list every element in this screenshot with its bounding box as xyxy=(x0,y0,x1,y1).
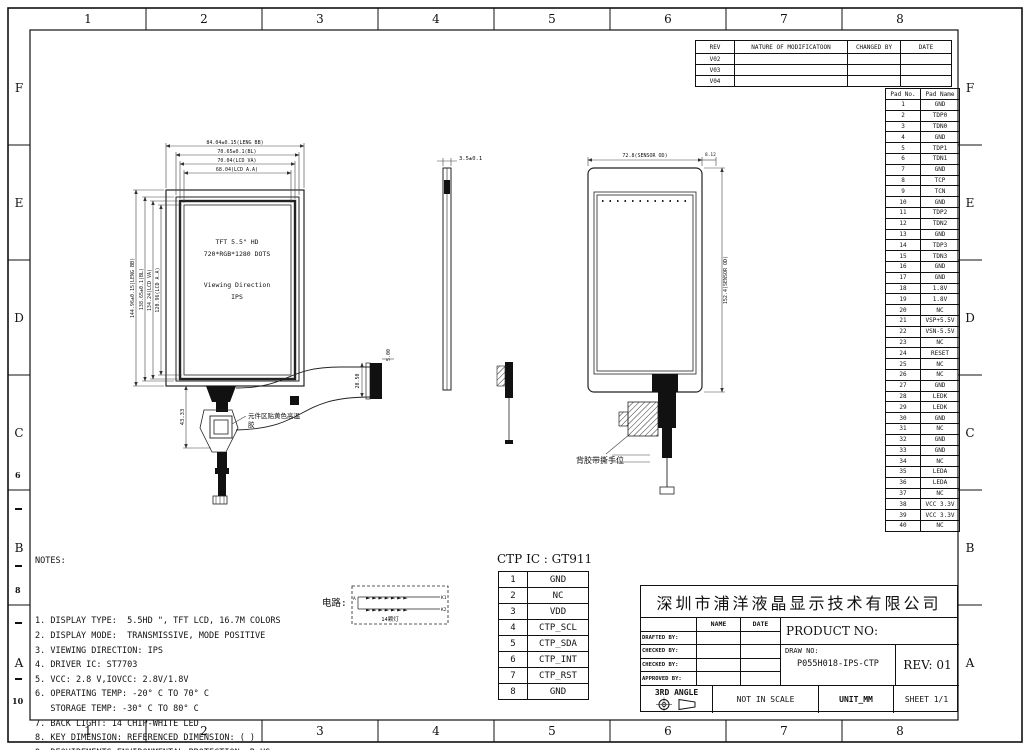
sheet-cell: SHEET 1/1 xyxy=(894,686,959,713)
pad-row: 37 NC xyxy=(886,488,960,499)
ctp-pin-row: 8 GND xyxy=(499,684,589,700)
nature-header: NATURE OF MODIFICATOON xyxy=(735,41,848,54)
svg-text:84.04±0.15(LENG BB): 84.04±0.15(LENG BB) xyxy=(206,140,263,146)
pad-name-cell: NC xyxy=(921,521,960,532)
pad-row: 40 NC xyxy=(886,521,960,532)
product-no: PRODUCT NO: xyxy=(781,618,959,645)
pad-no-cell: 31 xyxy=(886,423,921,434)
note-line: 3. VIEWING DIRECTION: IPS xyxy=(35,644,345,659)
pad-name-cell: TDN3 xyxy=(921,251,960,262)
ctp-pin-no-cell: 7 xyxy=(499,668,528,684)
pad-no-cell: 2 xyxy=(886,110,921,121)
pad-name-cell: GND xyxy=(921,197,960,208)
border-columns-top: 12345678 xyxy=(30,8,958,30)
sig-name-cell xyxy=(697,645,741,659)
lcd-side-view: 3.5±0.1 xyxy=(437,156,513,444)
title-block: 深圳市浦洋液晶显示技术有限公司 NAME DATE DRAFTED BY: CH… xyxy=(640,585,958,712)
ctp-pin-row: 1 GND xyxy=(499,572,589,588)
pad-row: 3 TDN0 xyxy=(886,121,960,132)
note-line: 5. VCC: 2.8 V,IOVCC: 2.8V/1.8V xyxy=(35,673,345,688)
pad-no-cell: 22 xyxy=(886,326,921,337)
svg-text:720*RGB*1280 DOTS: 720*RGB*1280 DOTS xyxy=(204,250,271,258)
pad-row: 10 GND xyxy=(886,197,960,208)
pad-name-cell: TDP0 xyxy=(921,110,960,121)
rev-header: REV xyxy=(696,41,735,54)
sig-date-cell xyxy=(741,645,781,659)
pad-name-cell: LEDK xyxy=(921,402,960,413)
pad-name-cell: GND xyxy=(921,272,960,283)
pad-row: 29 LEDK xyxy=(886,402,960,413)
pad-name-cell: LEDK xyxy=(921,391,960,402)
rev-id-cell: V03 xyxy=(696,65,735,76)
led-symbols-icon: ►►►►►►► xyxy=(366,606,410,614)
pad-no-cell: 8 xyxy=(886,175,921,186)
svg-text:背胶带撕手位: 背胶带撕手位 xyxy=(576,455,624,465)
ctp-pin-name-cell: CTP_INT xyxy=(528,652,589,668)
svg-text:K1: K1 xyxy=(441,595,447,601)
pad-row: 7 GND xyxy=(886,164,960,175)
zone-column-label: 7 xyxy=(726,720,842,742)
border-dash xyxy=(15,678,22,680)
date-header: DATE xyxy=(901,41,952,54)
notes-block: NOTES: 1. DISPLAY TYPE: 5.5HD ", TFT LCD… xyxy=(35,554,345,750)
pad-row: 18 1.8V xyxy=(886,283,960,294)
pad-no-cell: 36 xyxy=(886,477,921,488)
pad-row: 2 TDP0 xyxy=(886,110,960,121)
pad-name-cell: TDN0 xyxy=(921,121,960,132)
svg-text:3.5±0.1: 3.5±0.1 xyxy=(459,156,482,162)
svg-text:14颗灯: 14颗灯 xyxy=(381,615,399,623)
fpc-note: 元件区贴黄色高温 胶 xyxy=(232,411,301,429)
sig-date-cell xyxy=(741,632,781,646)
zone-row-label: A xyxy=(958,605,982,720)
ctp-top-dimension: 72.8(SENSOR OD) 8.12 xyxy=(588,152,716,166)
zone-column-label: 2 xyxy=(146,8,262,30)
led-symbols-icon: ►►►►►►► xyxy=(366,594,410,602)
pad-no-cell: 25 xyxy=(886,359,921,370)
pad-row: 28 LEDK xyxy=(886,391,960,402)
zone-row-label: C xyxy=(958,375,982,490)
pad-row: 26 NC xyxy=(886,369,960,380)
svg-text:胶: 胶 xyxy=(248,420,255,429)
nature-cell xyxy=(735,65,848,76)
sig-label: APPROVED BY: xyxy=(641,672,697,686)
pad-row: 33 GND xyxy=(886,445,960,456)
zone-row-label: E xyxy=(8,145,30,260)
pad-row: 39 VCC 3.3V xyxy=(886,510,960,521)
pad-row: 25 NC xyxy=(886,359,960,370)
pad-no-cell: 1 xyxy=(886,100,921,111)
ctp-pin-no-cell: 3 xyxy=(499,604,528,620)
pad-name-cell: TDP3 xyxy=(921,240,960,251)
svg-text:20.50: 20.50 xyxy=(355,373,361,388)
note-line: 2. DISPLAY MODE: TRANSMISSIVE, MODE POSI… xyxy=(35,629,345,644)
pad-no-cell: 9 xyxy=(886,186,921,197)
border-subtick: 6 xyxy=(15,470,21,480)
pad-no-cell: 33 xyxy=(886,445,921,456)
pad-row: 6 TDN1 xyxy=(886,153,960,164)
pad-row: 14 TDP3 xyxy=(886,240,960,251)
pad-row: 9 TCN xyxy=(886,186,960,197)
changed-cell xyxy=(848,76,901,87)
pad-no-cell: 14 xyxy=(886,240,921,251)
pad-no-cell: 18 xyxy=(886,283,921,294)
sig-date-cell xyxy=(741,672,781,686)
rev-id-cell: V02 xyxy=(696,54,735,65)
zone-row-label: E xyxy=(958,145,982,260)
pad-row: 23 NC xyxy=(886,337,960,348)
zone-row-label: D xyxy=(958,260,982,375)
pad-no-cell: 21 xyxy=(886,315,921,326)
pad-name-cell: GND xyxy=(921,229,960,240)
pad-no-cell: 7 xyxy=(886,164,921,175)
zone-row-label: F xyxy=(958,30,982,145)
zone-column-label: 6 xyxy=(610,720,726,742)
svg-text:138.65±0.1(BL): 138.65±0.1(BL) xyxy=(139,268,145,310)
pad-name-cell: NC xyxy=(921,488,960,499)
pad-no-cell: 11 xyxy=(886,207,921,218)
drawing-sheet: TFT 5.5" HD 720*RGB*1280 DOTS Viewing Di… xyxy=(0,0,1030,750)
title-block-bottom: 3RD ANGLE NOT IN SCALE UNIT_MM SHEET 1/1 xyxy=(641,686,959,713)
svg-text:Viewing Direction: Viewing Direction xyxy=(204,281,271,289)
ctp-pin-name-cell: CTP_SDA xyxy=(528,636,589,652)
pad-no-cell: 27 xyxy=(886,380,921,391)
nature-cell xyxy=(735,54,848,65)
svg-text:K2: K2 xyxy=(441,607,447,613)
changed-cell xyxy=(848,54,901,65)
zone-column-label: 4 xyxy=(378,720,494,742)
pad-no-cell: 38 xyxy=(886,499,921,510)
date-header: DATE xyxy=(741,618,781,632)
pad-no-cell: 4 xyxy=(886,132,921,143)
svg-text:70.65±0.1(BL): 70.65±0.1(BL) xyxy=(217,149,256,155)
pad-no-cell: 29 xyxy=(886,402,921,413)
changed-header: CHANGED BY xyxy=(848,41,901,54)
pad-row: 30 GND xyxy=(886,413,960,424)
pad-row: 13 GND xyxy=(886,229,960,240)
zone-column-label: 8 xyxy=(842,720,958,742)
pad-row: 24 RESET xyxy=(886,348,960,359)
note-line: 1. DISPLAY TYPE: 5.5HD ", TFT LCD, 16.7M… xyxy=(35,614,345,629)
pad-name-cell: NC xyxy=(921,423,960,434)
svg-text:68.04(LCD A.A): 68.04(LCD A.A) xyxy=(216,167,258,173)
border-dash xyxy=(15,565,22,567)
zone-column-label: 1 xyxy=(30,8,146,30)
sig-name-cell xyxy=(697,632,741,646)
svg-text:8.12: 8.12 xyxy=(705,152,716,158)
ctp-pin-name-cell: GND xyxy=(528,684,589,700)
adhesive-pull-tab: 背胶带撕手位 xyxy=(576,402,658,465)
fpc-tail xyxy=(200,386,299,504)
ctp-pin-row: 3 VDD xyxy=(499,604,589,620)
svg-text:72.8(SENSOR OD): 72.8(SENSOR OD) xyxy=(622,153,667,159)
pad-table: Pad No. Pad Name 1 GND 2 TDP0 3 TDN0 xyxy=(885,88,960,532)
pad-row: 20 NC xyxy=(886,305,960,316)
lcd-front-view: TFT 5.5" HD 720*RGB*1280 DOTS Viewing Di… xyxy=(130,140,394,504)
pad-name-cell: TDN2 xyxy=(921,218,960,229)
ctp-pin-row: 2 NC xyxy=(499,588,589,604)
date-cell xyxy=(901,54,952,65)
pad-no-cell: 26 xyxy=(886,369,921,380)
pad-no-cell: 13 xyxy=(886,229,921,240)
pad-no-cell: 20 xyxy=(886,305,921,316)
pad-no-cell: 32 xyxy=(886,434,921,445)
pad-row: 21 VSP+5.5V xyxy=(886,315,960,326)
pad-row: 5 TDP1 xyxy=(886,143,960,154)
pad-no-cell: 28 xyxy=(886,391,921,402)
pad-no-cell: 5 xyxy=(886,143,921,154)
pad-row: 11 TDP2 xyxy=(886,207,960,218)
pad-no-cell: 37 xyxy=(886,488,921,499)
rev-id-cell: V04 xyxy=(696,76,735,87)
pad-no-cell: 19 xyxy=(886,294,921,305)
date-cell xyxy=(901,76,952,87)
ctp-pin-row: 4 CTP_SCL xyxy=(499,620,589,636)
ctp-pin-no-cell: 8 xyxy=(499,684,528,700)
pad-no-cell: 34 xyxy=(886,456,921,467)
zone-column-label: 8 xyxy=(842,8,958,30)
pad-name-cell: GND xyxy=(921,434,960,445)
pad-name-cell: VCC 3.3V xyxy=(921,499,960,510)
pad-row: 31 NC xyxy=(886,423,960,434)
pad-name-cell: TDP1 xyxy=(921,143,960,154)
pad-name-cell: 1.8V xyxy=(921,294,960,305)
ctp-pin-no-cell: 1 xyxy=(499,572,528,588)
notes-title: NOTES: xyxy=(35,554,345,569)
ctp-pin-no-cell: 5 xyxy=(499,636,528,652)
sig-name-cell xyxy=(697,672,741,686)
pad-name-cell: LEDA xyxy=(921,477,960,488)
pad-no-cell: 35 xyxy=(886,467,921,478)
svg-text:120.96(LCD A.A): 120.96(LCD A.A) xyxy=(155,267,161,312)
svg-text:144.96±0.15(LENG BB): 144.96±0.15(LENG BB) xyxy=(130,258,136,318)
pad-row: 32 GND xyxy=(886,434,960,445)
rev-number: REV: 01 xyxy=(896,645,959,686)
pad-row: 16 GND xyxy=(886,261,960,272)
svg-text:5.00: 5.00 xyxy=(386,349,392,361)
thickness-dimension: 3.5±0.1 xyxy=(437,156,482,166)
pad-name-cell: NC xyxy=(921,456,960,467)
sig-label: CHECKED BY: xyxy=(641,645,697,659)
pad-no-cell: 12 xyxy=(886,218,921,229)
pad-name-cell: TCP xyxy=(921,175,960,186)
zone-column-label: 5 xyxy=(494,8,610,30)
svg-text:152.4(SENSOR OD): 152.4(SENSOR OD) xyxy=(723,256,729,304)
ctp-pin-no-cell: 6 xyxy=(499,652,528,668)
signature-grid: NAME DATE DRAFTED BY: CHECKED BY: CHECKE… xyxy=(641,618,781,686)
svg-text:TFT 5.5" HD: TFT 5.5" HD xyxy=(215,238,258,246)
ctp-pin-no-cell: 4 xyxy=(499,620,528,636)
note-line: STORAGE TEMP: -30° C TO 80° C xyxy=(35,702,345,717)
nature-cell xyxy=(735,76,848,87)
pad-name-cell: GND xyxy=(921,100,960,111)
pad-row: 36 LEDA xyxy=(886,477,960,488)
note-line: 4. DRIVER IC: ST7703 xyxy=(35,658,345,673)
pad-no-cell: 16 xyxy=(886,261,921,272)
pad-no-cell: 40 xyxy=(886,521,921,532)
pad-name-cell: GND xyxy=(921,380,960,391)
date-cell xyxy=(901,65,952,76)
svg-text:134.24(LCD VA): 134.24(LCD VA) xyxy=(147,269,153,311)
company-name: 深圳市浦洋液晶显示技术有限公司 xyxy=(641,586,957,618)
pad-no-cell: 30 xyxy=(886,413,921,424)
pad-no-cell: 23 xyxy=(886,337,921,348)
name-header: NAME xyxy=(697,618,741,632)
pad-row: 12 TDN2 xyxy=(886,218,960,229)
border-dash xyxy=(15,508,22,510)
projection-angle-label: 3RD ANGLE xyxy=(655,688,698,697)
pad-row: 34 NC xyxy=(886,456,960,467)
pad-name-cell: GND xyxy=(921,132,960,143)
draw-no-value: P055H018-IPS-CTP xyxy=(781,659,895,669)
sig-date-cell xyxy=(741,659,781,673)
revision-row: V03 xyxy=(696,65,952,76)
border-dash xyxy=(15,622,22,624)
ctp-ic-title: CTP IC : GT911 xyxy=(497,552,592,566)
pad-row: 19 1.8V xyxy=(886,294,960,305)
draw-no-label: DRAW NO: xyxy=(781,645,895,655)
svg-text:43.33: 43.33 xyxy=(180,409,186,426)
pad-row: 22 VSN-5.5V xyxy=(886,326,960,337)
pad-row: 38 VCC 3.3V xyxy=(886,499,960,510)
pad-row: 8 TCP xyxy=(886,175,960,186)
sig-corner-cell xyxy=(641,618,697,632)
lcd-center-text: TFT 5.5" HD 720*RGB*1280 DOTS Viewing Di… xyxy=(204,238,271,301)
ctp-pin-row: 5 CTP_SDA xyxy=(499,636,589,652)
pad-row: 35 LEDA xyxy=(886,467,960,478)
pad-no-cell: 17 xyxy=(886,272,921,283)
changed-cell xyxy=(848,65,901,76)
pad-name-cell: NC xyxy=(921,305,960,316)
svg-text:元件区贴黄色高温: 元件区贴黄色高温 xyxy=(248,411,301,420)
zone-column-label: 7 xyxy=(726,8,842,30)
revision-table: REV NATURE OF MODIFICATOON CHANGED BY DA… xyxy=(695,40,952,87)
ctp-pin-name-cell: CTP_SCL xyxy=(528,620,589,636)
sig-name-cell xyxy=(697,659,741,673)
pad-row: 17 GND xyxy=(886,272,960,283)
ctp-front-view: 72.8(SENSOR OD) 8.12 152.4(SENSOR OD) xyxy=(576,152,729,494)
pad-name-cell: RESET xyxy=(921,348,960,359)
pad-name-cell: GND xyxy=(921,413,960,424)
pad-name-cell: LEDA xyxy=(921,467,960,478)
pad-name-header: Pad Name xyxy=(921,89,960,100)
draw-no-cell: DRAW NO: P055H018-IPS-CTP xyxy=(781,645,896,686)
pad-name-cell: 1.8V xyxy=(921,283,960,294)
fpc-length-dimension: 43.33 xyxy=(180,386,211,448)
pad-no-header: Pad No. xyxy=(886,89,921,100)
pad-no-cell: 15 xyxy=(886,251,921,262)
pad-no-cell: 10 xyxy=(886,197,921,208)
pad-name-cell: VCC 3.3V xyxy=(921,510,960,521)
revision-row: V02 xyxy=(696,54,952,65)
pad-name-cell: NC xyxy=(921,369,960,380)
zone-row-label: F xyxy=(8,30,30,145)
pad-row: 1 GND xyxy=(886,100,960,111)
pad-name-cell: TDN1 xyxy=(921,153,960,164)
pad-no-cell: 39 xyxy=(886,510,921,521)
pad-name-cell: TDP2 xyxy=(921,207,960,218)
svg-text:A: A xyxy=(353,596,356,602)
zone-column-label: 5 xyxy=(494,720,610,742)
border-subtick: 10 xyxy=(12,696,23,706)
note-line: 7. BACK LIGHT: 14 CHIP-WHITE LED xyxy=(35,717,345,732)
projection-angle-cell: 3RD ANGLE xyxy=(641,686,713,713)
pad-name-cell: GND xyxy=(921,164,960,175)
zone-column-label: 4 xyxy=(378,8,494,30)
ctp-pin-table: 1 GND 2 NC 3 VDD 4 CTP_SCL xyxy=(498,571,589,700)
pad-no-cell: 6 xyxy=(886,153,921,164)
pad-name-cell: VSP+5.5V xyxy=(921,315,960,326)
ctp-pin-no-cell: 2 xyxy=(499,588,528,604)
zone-column-label: 3 xyxy=(262,8,378,30)
ctp-pin-row: 7 CTP_RST xyxy=(499,668,589,684)
ctp-pin-name-cell: CTP_RST xyxy=(528,668,589,684)
border-rows-right: FEDCBA xyxy=(958,30,982,720)
note-line: 6. OPERATING TEMP: -20° C TO 70° C xyxy=(35,687,345,702)
pad-no-cell: 24 xyxy=(886,348,921,359)
third-angle-symbol-icon xyxy=(655,697,699,712)
pad-name-cell: GND xyxy=(921,445,960,456)
revision-row: V04 xyxy=(696,76,952,87)
scale-cell: NOT IN SCALE xyxy=(713,686,819,713)
note-line: 8. KEY DIMENSION: REFERENCED DIMENSION: … xyxy=(35,731,345,746)
pad-name-cell: GND xyxy=(921,261,960,272)
zone-row-label: D xyxy=(8,260,30,375)
border-subtick: 8 xyxy=(15,585,21,595)
sig-label: CHECKED BY: xyxy=(641,659,697,673)
ctp-pin-name-cell: NC xyxy=(528,588,589,604)
pad-name-cell: NC xyxy=(921,337,960,348)
fpc-side-profile xyxy=(497,362,513,444)
unit-cell: UNIT_MM xyxy=(819,686,894,713)
pad-row: 15 TDN3 xyxy=(886,251,960,262)
ctp-pin-name-cell: VDD xyxy=(528,604,589,620)
svg-text:70.04(LCD VA): 70.04(LCD VA) xyxy=(217,158,256,164)
ctp-pin-name-cell: GND xyxy=(528,572,589,588)
svg-text:IPS: IPS xyxy=(231,293,243,301)
pad-name-cell: NC xyxy=(921,359,960,370)
sig-label: DRAFTED BY: xyxy=(641,632,697,646)
pad-row: 27 GND xyxy=(886,380,960,391)
pad-name-cell: TCN xyxy=(921,186,960,197)
pad-row: 4 GND xyxy=(886,132,960,143)
ctp-pin-row: 6 CTP_INT xyxy=(499,652,589,668)
pad-no-cell: 3 xyxy=(886,121,921,132)
zone-column-label: 6 xyxy=(610,8,726,30)
border-rows-left: FEDCBA xyxy=(8,30,30,720)
pad-name-cell: VSN-5.5V xyxy=(921,326,960,337)
zone-row-label: B xyxy=(958,490,982,605)
note-line: 9. REQUIREMENTS ENVIRONMENTAL PROTECTION… xyxy=(35,746,345,750)
ctp-right-dimension: 152.4(SENSOR OD) xyxy=(704,168,729,392)
